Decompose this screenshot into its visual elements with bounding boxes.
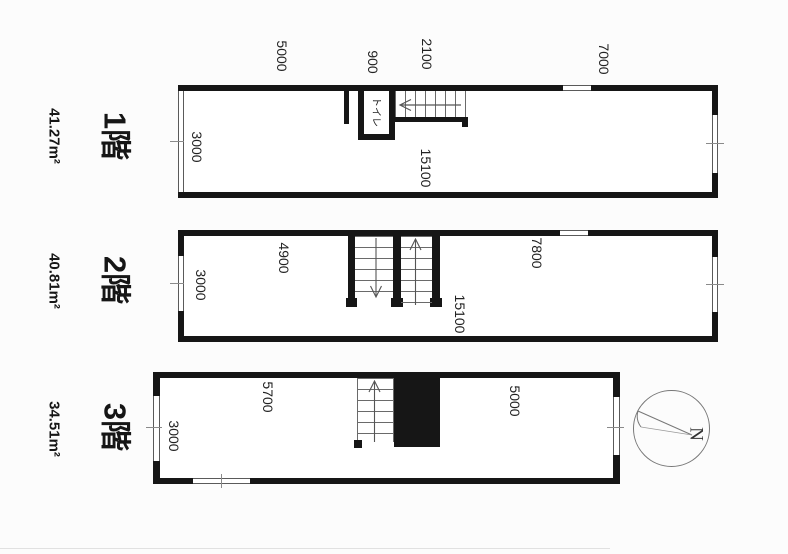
- f3-right-window-tick: [607, 427, 624, 428]
- f1-dim-stair-width: 2100: [420, 38, 434, 69]
- compass-rose: N: [632, 389, 712, 469]
- f2-left-window-tick: [170, 283, 184, 284]
- floor3-title: 3階: [100, 403, 131, 451]
- f2-stair-wall-right: [432, 236, 440, 300]
- f1-stair-direction-arrow-icon: [397, 98, 463, 112]
- f1-right-window: [712, 115, 718, 173]
- f2-stair-wall-middle: [393, 236, 401, 300]
- f3-dim-depth: 3000: [167, 420, 181, 451]
- f2-dim-length: 15100: [453, 295, 467, 334]
- f3-right-wall-bottom: [613, 455, 620, 478]
- floor1-title: 1階: [100, 112, 131, 160]
- f1-stair-wall-end-nub: [462, 122, 468, 127]
- floor2-interior: [178, 230, 718, 342]
- f1-dim-toilet-width: 900: [366, 50, 380, 73]
- f3-left-window-tick: [146, 427, 162, 428]
- floorplan-sheet: 1階 41.27m² 5000 900 2100 7000 3000 15100…: [0, 0, 788, 554]
- f3-dim-right-section: 5000: [508, 385, 522, 416]
- floor2-area: 40.81m²: [47, 253, 62, 309]
- f1-dim-length: 15100: [419, 149, 433, 188]
- floor2-title: 2階: [100, 256, 131, 304]
- scan-artifact-line: [0, 548, 610, 549]
- f1-stair-side-wall: [393, 117, 468, 122]
- f2-left-wall-bottom: [178, 311, 184, 336]
- f3-bottom-window-tick: [221, 474, 222, 488]
- f2-left-wall-top: [178, 236, 184, 256]
- f1-right-wall-top: [712, 91, 718, 115]
- north-label: N: [686, 427, 707, 441]
- f1-dim-top-left: 5000: [275, 40, 289, 71]
- f2-top-window: [560, 230, 588, 236]
- floor1-area: 41.27m²: [47, 108, 62, 164]
- f3-right-wall-top: [613, 378, 620, 397]
- f3-bottom-wall-right: [250, 478, 620, 484]
- f3-right-window: [613, 397, 620, 455]
- f2-dim-depth: 3000: [194, 269, 208, 300]
- f2-right-wall-bottom: [712, 312, 718, 336]
- f1-top-wall-right: [591, 85, 718, 91]
- f3-bottom-wall-left: [153, 478, 193, 484]
- f3-solid-shaft-area: [394, 374, 440, 447]
- f1-left-window-tick: [170, 141, 184, 142]
- f1-top-wall-left: [178, 85, 563, 91]
- north-needle-icon: [637, 411, 692, 435]
- f1-right-window-tick: [706, 143, 724, 144]
- f3-left-wall-bottom: [153, 461, 160, 478]
- f3-stair-wall-foot: [354, 440, 362, 448]
- f2-right-wall-top: [712, 236, 718, 257]
- f2-stair-wall-left: [348, 236, 355, 300]
- f1-toilet-left-wall: [358, 91, 364, 140]
- floor3-area: 34.51m²: [47, 401, 62, 457]
- f2-stair-down-arrow-icon: [369, 238, 383, 300]
- f1-dim-top-right: 7000: [597, 43, 611, 74]
- f1-bottom-wall: [178, 192, 718, 198]
- f1-dim-depth: 3000: [190, 131, 204, 162]
- f1-top-window: [563, 85, 591, 91]
- f2-dim-left-section: 4900: [277, 242, 291, 273]
- f2-dim-right-section: 7800: [530, 237, 544, 268]
- f2-top-wall-right: [588, 230, 718, 236]
- f3-stair-up-arrow-icon: [368, 380, 381, 444]
- f3-left-wall-top: [153, 378, 160, 396]
- f1-right-wall-bottom: [712, 173, 718, 192]
- f2-stair-up-arrow-icon: [409, 238, 422, 306]
- f1-toilet-entry-stub-wall: [344, 91, 349, 124]
- f3-dim-left-section: 5700: [261, 381, 275, 412]
- f3-left-window: [153, 396, 160, 461]
- f2-bottom-wall: [178, 336, 718, 342]
- f1-toilet-label: トイレ: [370, 97, 380, 127]
- f2-right-window-tick: [706, 284, 724, 285]
